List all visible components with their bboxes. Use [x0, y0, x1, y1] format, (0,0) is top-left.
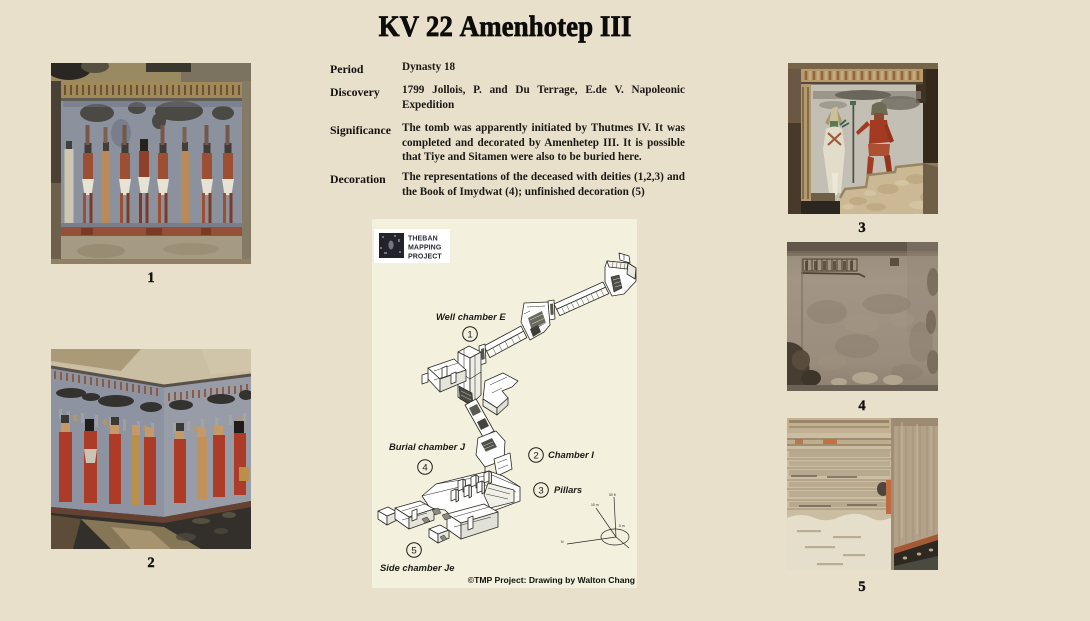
svg-text:2: 2: [533, 451, 538, 462]
svg-text:3: 3: [538, 486, 543, 497]
svg-text:PROJECT: PROJECT: [408, 254, 442, 261]
svg-text:MAPPING: MAPPING: [408, 245, 442, 252]
svg-text:4: 4: [422, 463, 428, 474]
svg-text:5: 5: [411, 546, 416, 557]
svg-text:5 m: 5 m: [619, 524, 625, 528]
svg-text:©TMP Project: Drawing by Walto: ©TMP Project: Drawing by Walton Chang: [468, 575, 635, 585]
svg-text:THEBAN: THEBAN: [408, 236, 438, 243]
svg-text:15 m: 15 m: [591, 503, 599, 507]
svg-text:Pillars: Pillars: [554, 484, 582, 495]
svg-text:Well chamber E: Well chamber E: [436, 311, 506, 322]
svg-text:1: 1: [467, 330, 472, 341]
svg-text:Side chamber Je: Side chamber Je: [380, 562, 455, 573]
svg-text:Chamber I: Chamber I: [548, 449, 594, 460]
svg-text:Burial chamber J: Burial chamber J: [389, 441, 466, 452]
svg-text:50 ft: 50 ft: [609, 493, 616, 497]
